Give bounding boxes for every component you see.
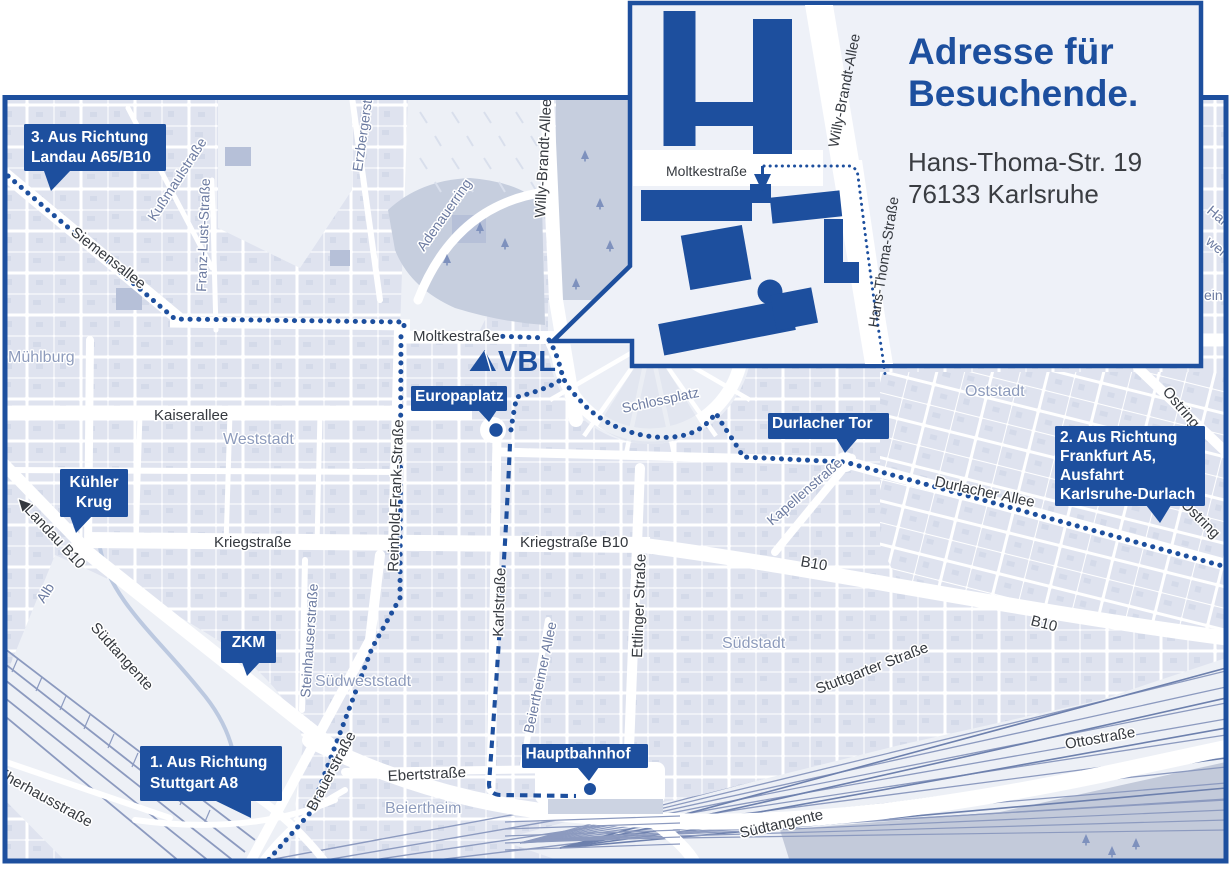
svg-text:Durlacher Tor: Durlacher Tor bbox=[772, 415, 873, 432]
svg-text:Kriegstraße: Kriegstraße bbox=[214, 534, 292, 551]
svg-text:ein: ein bbox=[1204, 287, 1223, 303]
svg-text:1. Aus Richtung: 1. Aus Richtung bbox=[150, 754, 267, 771]
svg-text:Oststadt: Oststadt bbox=[965, 383, 1025, 400]
svg-text:Mühlburg: Mühlburg bbox=[8, 349, 75, 366]
svg-text:Südweststadt: Südweststadt bbox=[315, 673, 412, 690]
svg-text:Landau A65/B10: Landau A65/B10 bbox=[31, 149, 151, 166]
svg-text:3. Aus Richtung: 3. Aus Richtung bbox=[31, 129, 148, 146]
svg-text:Südstadt: Südstadt bbox=[722, 635, 786, 652]
svg-text:Europaplatz: Europaplatz bbox=[415, 388, 504, 405]
svg-text:Moltkestraße: Moltkestraße bbox=[666, 163, 747, 179]
svg-text:Frankfurt A5,: Frankfurt A5, bbox=[1060, 448, 1156, 465]
svg-text:2. Aus Richtung: 2. Aus Richtung bbox=[1060, 429, 1177, 446]
svg-text:Ettlinger Straße: Ettlinger Straße bbox=[629, 553, 650, 658]
svg-text:Kaiserallee: Kaiserallee bbox=[154, 407, 228, 424]
svg-text:Beiertheim: Beiertheim bbox=[385, 800, 461, 817]
svg-text:VBL: VBL bbox=[498, 346, 556, 378]
svg-text:Hans-Thoma-Str. 19: Hans-Thoma-Str. 19 bbox=[908, 147, 1142, 177]
svg-text:Adresse für: Adresse für bbox=[908, 31, 1114, 72]
svg-text:Weststadt: Weststadt bbox=[223, 431, 294, 448]
svg-text:76133 Karlsruhe: 76133 Karlsruhe bbox=[908, 179, 1099, 209]
svg-text:Hauptbahnhof: Hauptbahnhof bbox=[526, 745, 632, 762]
svg-text:Stuttgart A8: Stuttgart A8 bbox=[150, 775, 238, 792]
svg-text:Krug: Krug bbox=[76, 494, 112, 511]
svg-text:Karlstraße: Karlstraße bbox=[490, 567, 509, 637]
svg-text:Kühler: Kühler bbox=[69, 474, 118, 491]
svg-text:Ausfahrt: Ausfahrt bbox=[1060, 467, 1124, 484]
svg-text:Besuchende.: Besuchende. bbox=[908, 73, 1138, 114]
svg-text:Moltkestraße: Moltkestraße bbox=[413, 328, 500, 345]
svg-text:ZKM: ZKM bbox=[232, 634, 266, 651]
svg-text:Kriegstraße B10: Kriegstraße B10 bbox=[520, 534, 628, 551]
svg-text:Karlsruhe-Durlach: Karlsruhe-Durlach bbox=[1060, 486, 1195, 503]
